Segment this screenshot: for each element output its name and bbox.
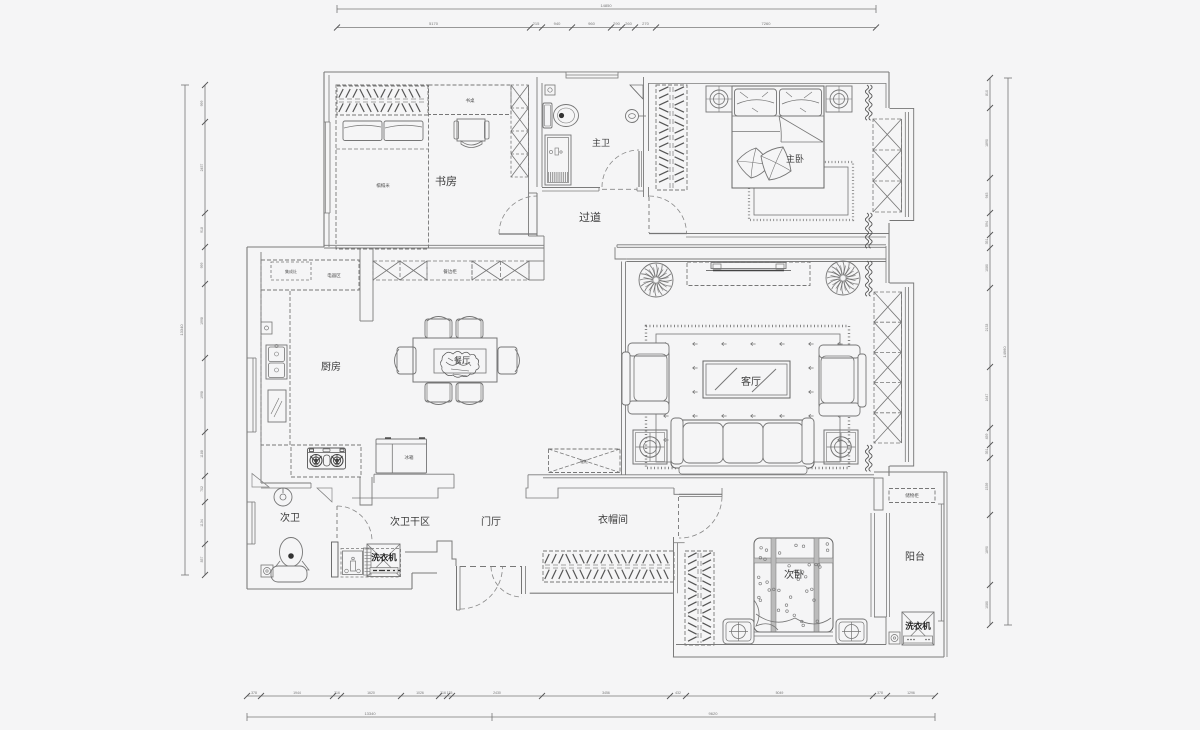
svg-text:主卫: 主卫 <box>592 137 610 148</box>
svg-text:客厅: 客厅 <box>741 375 761 388</box>
svg-text:2133: 2133 <box>985 324 989 332</box>
svg-text:次卫干区: 次卫干区 <box>390 515 430 528</box>
svg-text:945: 945 <box>985 193 989 199</box>
svg-text:960: 960 <box>588 21 595 26</box>
svg-text:5170: 5170 <box>429 21 439 26</box>
svg-text:7260: 7260 <box>762 21 772 26</box>
svg-text:1026: 1026 <box>416 691 424 695</box>
svg-text:1539: 1539 <box>985 483 989 491</box>
svg-text:衣帽间: 衣帽间 <box>598 513 628 526</box>
svg-text:351: 351 <box>985 449 989 455</box>
svg-text:厨房: 厨房 <box>321 360 341 373</box>
svg-text:书桌: 书桌 <box>466 97 475 104</box>
svg-text:351: 351 <box>985 239 989 245</box>
svg-text:216: 216 <box>440 691 446 695</box>
svg-text:9620: 9620 <box>709 711 719 716</box>
svg-text:1890: 1890 <box>985 546 989 554</box>
svg-text:1188: 1188 <box>200 450 204 458</box>
svg-text:135: 135 <box>447 691 453 695</box>
svg-text:999: 999 <box>200 101 204 107</box>
svg-text:洗衣机: 洗衣机 <box>371 553 397 563</box>
svg-text:主卧: 主卧 <box>786 153 804 164</box>
svg-text:鞋柜: 鞋柜 <box>580 458 588 464</box>
svg-text:1998: 1998 <box>200 317 204 325</box>
svg-text:594: 594 <box>985 221 989 227</box>
svg-text:2430: 2430 <box>493 691 501 695</box>
svg-text:餐边柜: 餐边柜 <box>443 268 457 275</box>
svg-text:电器区: 电器区 <box>327 272 341 279</box>
svg-text:837: 837 <box>200 557 204 563</box>
svg-text:书房: 书房 <box>435 175 457 188</box>
svg-text:1620: 1620 <box>367 691 375 695</box>
svg-text:1296: 1296 <box>907 691 915 695</box>
svg-text:13340: 13340 <box>364 711 376 716</box>
svg-text:1080: 1080 <box>985 601 989 609</box>
svg-text:5049: 5049 <box>776 691 784 695</box>
svg-text:榻榻米: 榻榻米 <box>376 182 390 189</box>
svg-text:1134: 1134 <box>200 519 204 527</box>
svg-text:810: 810 <box>985 90 989 96</box>
svg-text:1080: 1080 <box>985 264 989 272</box>
svg-text:1647: 1647 <box>985 394 989 402</box>
svg-text:次卫: 次卫 <box>280 511 300 524</box>
svg-text:14850: 14850 <box>600 3 612 8</box>
svg-text:290: 290 <box>613 21 620 26</box>
svg-text:储物柜: 储物柜 <box>905 492 919 499</box>
svg-text:13340: 13340 <box>179 324 184 336</box>
svg-text:集成灶: 集成灶 <box>285 268 297 274</box>
svg-text:432: 432 <box>675 691 681 695</box>
svg-text:216: 216 <box>334 691 340 695</box>
svg-text:215: 215 <box>533 21 540 26</box>
svg-text:378: 378 <box>877 691 883 695</box>
svg-text:459: 459 <box>985 434 989 440</box>
svg-text:260: 260 <box>625 21 632 26</box>
svg-text:冰箱: 冰箱 <box>405 454 414 461</box>
svg-text:270: 270 <box>642 21 649 26</box>
svg-text:过道: 过道 <box>579 210 601 224</box>
svg-text:378: 378 <box>251 691 257 695</box>
svg-text:999: 999 <box>200 263 204 269</box>
svg-text:918: 918 <box>200 227 204 233</box>
svg-text:940: 940 <box>554 21 561 26</box>
svg-text:1944: 1944 <box>293 691 301 695</box>
svg-text:洗衣机: 洗衣机 <box>905 621 931 631</box>
svg-text:次卧: 次卧 <box>784 568 804 581</box>
svg-text:2457: 2457 <box>200 164 204 172</box>
svg-text:门厅: 门厅 <box>481 515 501 528</box>
svg-text:702: 702 <box>200 486 204 492</box>
svg-text:阳台: 阳台 <box>905 550 925 563</box>
svg-text:1998: 1998 <box>200 391 204 399</box>
svg-text:1890: 1890 <box>985 139 989 147</box>
svg-text:餐厅: 餐厅 <box>454 356 470 365</box>
svg-text:3456: 3456 <box>602 691 610 695</box>
svg-text:14960: 14960 <box>1002 346 1007 358</box>
